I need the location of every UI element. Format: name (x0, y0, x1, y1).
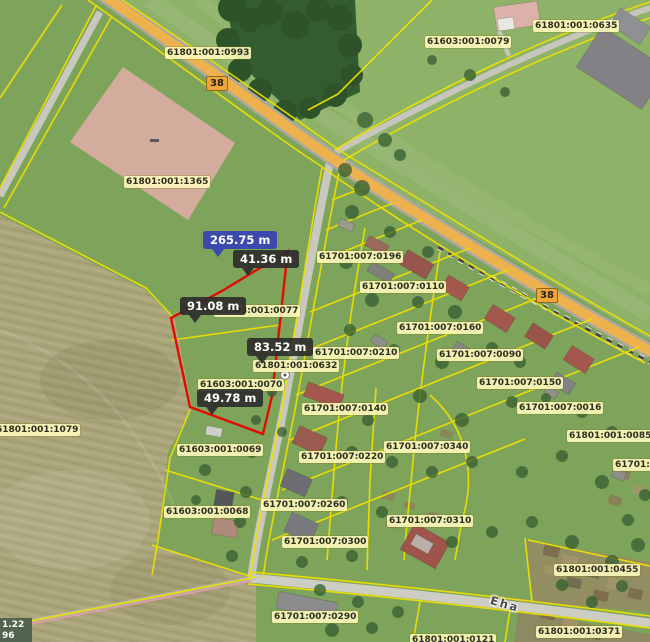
coordinate-line-2: 96 (2, 631, 24, 642)
survey-point-icon (286, 348, 294, 356)
coordinate-line-1: 1.22 (2, 620, 24, 631)
map-canvas[interactable]: 3838 61801:001:099361603:001:007961801:0… (0, 0, 650, 642)
basemap-image (0, 0, 650, 642)
coordinate-readout: 1.22 96 (0, 618, 32, 642)
